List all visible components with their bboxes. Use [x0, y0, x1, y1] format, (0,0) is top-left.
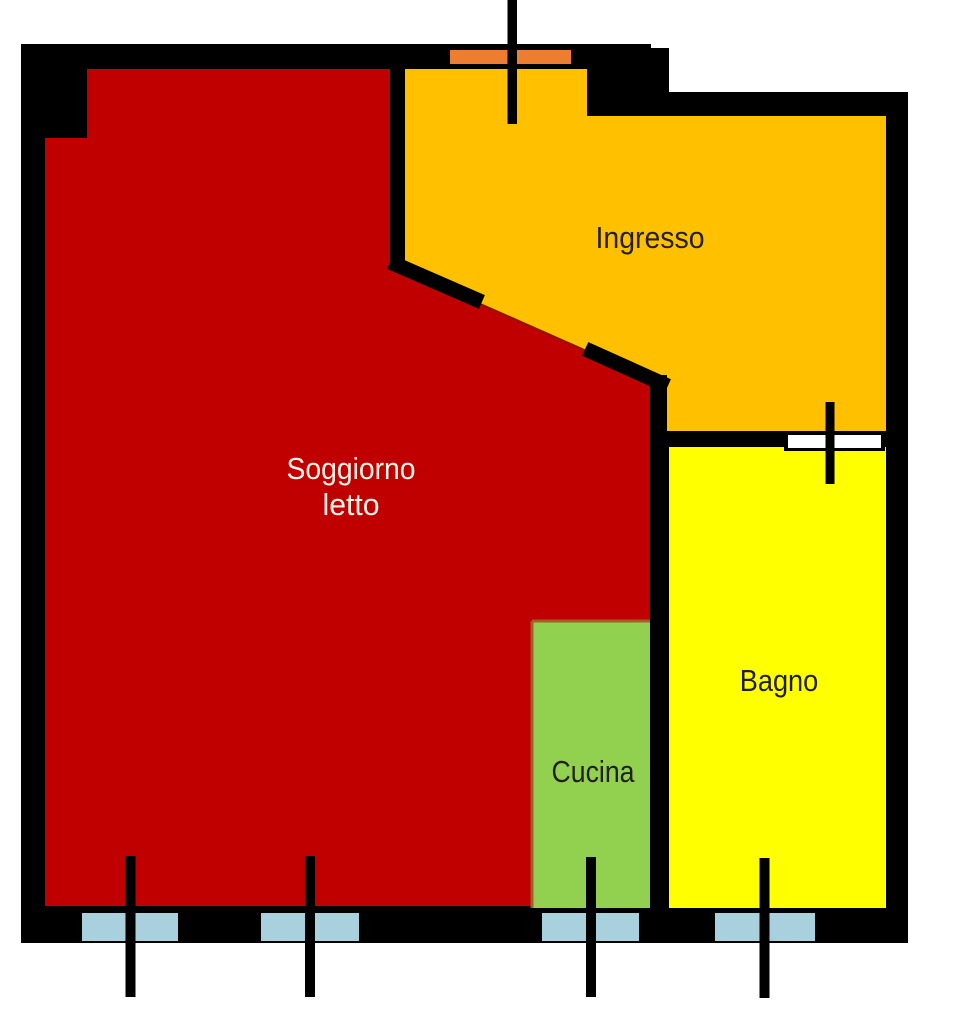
svg-text:Soggiorno: Soggiorno: [287, 451, 416, 486]
svg-text:Bagno: Bagno: [740, 663, 819, 698]
svg-text:Ingresso: Ingresso: [596, 220, 705, 255]
svg-text:Cucina: Cucina: [552, 754, 636, 789]
svg-text:letto: letto: [323, 487, 380, 522]
